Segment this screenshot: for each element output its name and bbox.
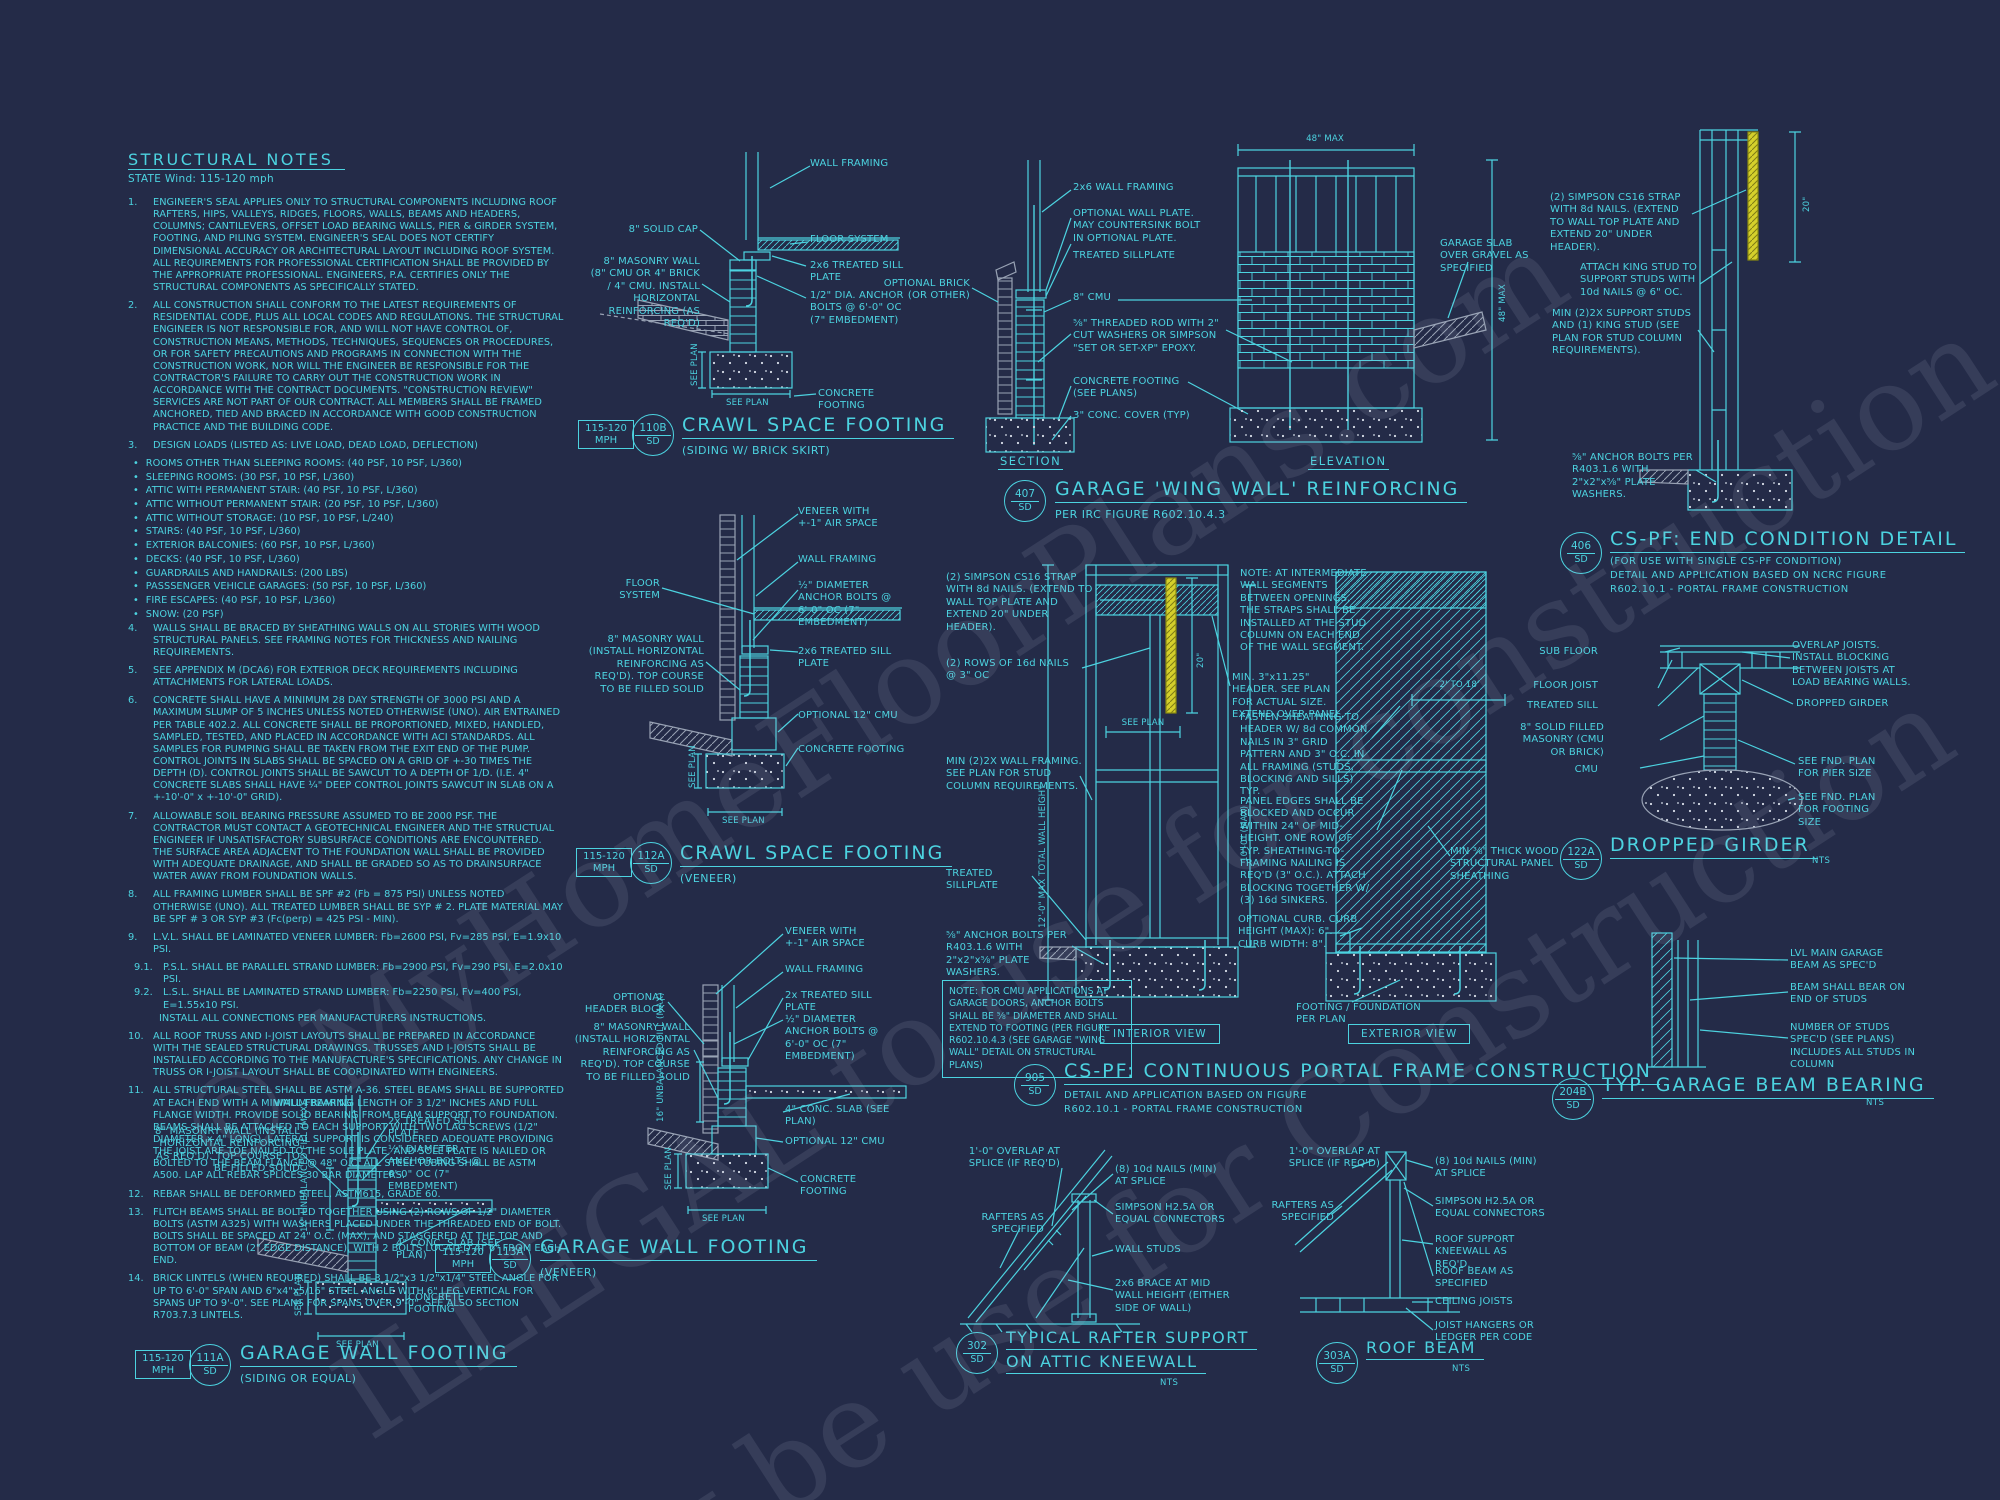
label-lvl-beam: LVL MAIN GARAGE BEAM AS SPEC'D: [1790, 948, 1910, 973]
d5-elevation-linework: [1230, 144, 1498, 442]
label-floor-system: FLOOR SYSTEM: [598, 578, 660, 603]
label-rafters: RAFTERS AS SPECIFIED: [958, 1212, 1044, 1237]
detail-subtitle: (SIDING W/ BRICK SKIRT): [682, 444, 830, 457]
label-sub-floor: SUB FLOOR: [1530, 646, 1598, 658]
label-wall-studs: WALL STUDS: [1115, 1244, 1205, 1256]
label-treated-sillplate: TREATED SILLPLATE: [1073, 250, 1193, 262]
dim-unbalanced-fill: 16" UNBALANCED FILL (MAX): [656, 992, 667, 1122]
label-stud-count: NUMBER OF STUDS SPEC'D (SEE PLANS) INCLU…: [1790, 1022, 1920, 1072]
detail-subtitle: R602.10.1 - PORTAL FRAME CONSTRUCTION: [1064, 1104, 1303, 1115]
note-item: 6.CONCRETE SHALL HAVE A MINIMUM 28 DAY S…: [128, 695, 564, 804]
detail-title-crawl-space-footing-veneer: CRAWL SPACE FOOTING: [680, 842, 952, 867]
design-load-bullet: SNOW: (20 PSF): [133, 609, 564, 622]
label-wall-framing: WALL FRAMING: [785, 964, 865, 976]
label-optional-cmu: OPTIONAL 12" CMU: [785, 1136, 895, 1148]
label-simpson-strap: (2) SIMPSON CS16 STRAP WITH 8d NAILS. (E…: [1550, 192, 1692, 254]
dim-48-max-right: 48" MAX: [1498, 284, 1509, 322]
detail-number-badge: 204B SD: [1552, 1078, 1594, 1120]
wind-rating-badge: 115-120 MPH: [135, 1350, 191, 1379]
label-garage-slab: GARAGE SLAB OVER GRAVEL AS SPECIFIED: [1440, 238, 1540, 275]
design-load-bullet: ATTIC WITHOUT STORAGE: (10 PSF, 10 PSF, …: [133, 513, 564, 526]
dim-see-plan: SEE PLAN: [702, 1214, 757, 1225]
label-wall-framing: MIN (2)2X WALL FRAMING. SEE PLAN FOR STU…: [946, 756, 1086, 793]
detail-subtitle: DETAIL AND APPLICATION BASED ON FIGURE: [1064, 1090, 1307, 1101]
nts-label: NTS: [1866, 1098, 1884, 1108]
dim-20in: 20": [1802, 197, 1813, 212]
dim-span: 2' TO 18': [1412, 680, 1507, 691]
label-slab: 4" CONC. SLAB (SEE PLAN): [785, 1104, 890, 1129]
note-item: 3.DESIGN LOADS (LISTED AS: LIVE LOAD, DE…: [128, 440, 564, 452]
detail-title-roof-beam: ROOF BEAM: [1366, 1338, 1484, 1360]
note-item: 5.SEE APPENDIX M (DCA6) FOR EXTERIOR DEC…: [128, 665, 564, 689]
detail-number-badge: 122A SD: [1560, 838, 1602, 880]
label-treated-sillplate: TREATED SILLPLATE: [946, 868, 1031, 893]
detail-subtitle: DETAIL AND APPLICATION BASED ON NCRC FIG…: [1610, 570, 1887, 581]
dim-see-plan: SEE PLAN: [1112, 718, 1174, 729]
label-pier-size: SEE FND. PLAN FOR PIER SIZE: [1798, 756, 1888, 781]
label-optional-brick: OPTIONAL BRICK (OR OTHER): [880, 278, 970, 303]
label-header-block: OPTIONAL HEADER BLOCK: [570, 992, 665, 1017]
label-anchor-bolts: ½" DIAMETER ANCHOR BOLTS @ 6'-0" OC (7" …: [798, 580, 916, 630]
notes-title: STRUCTURAL NOTES: [128, 150, 345, 170]
design-load-bullet: ATTIC WITHOUT PERMANENT STAIR: (20 PSF, …: [133, 499, 564, 512]
detail-title-garage-wall-footing-veneer: GARAGE WALL FOOTING: [540, 1236, 817, 1261]
design-load-bullet: EXTERIOR BALCONIES: (60 PSF, 10 PSF, L/3…: [133, 540, 564, 553]
label-masonry-wall: 8" MASONRY WALL (INSTALL HORIZONTAL REIN…: [586, 634, 704, 696]
label-wall-framing: 2x6 WALL FRAMING: [1073, 182, 1183, 194]
label-rafters: RAFTERS AS SPECIFIED: [1248, 1200, 1334, 1225]
design-load-bullet: SLEEPING ROOMS: (30 PSF, 10 PSF, L/360): [133, 472, 564, 485]
label-concrete-footing: CONCRETE FOOTING: [800, 1174, 890, 1199]
dim-wall-height: 12'-0" MAX TOTAL WALL HEIGHT: [1038, 784, 1049, 928]
label-sill-plate: 2x TREATED SILL PLATE: [388, 1116, 488, 1141]
label-veneer: VENEER WITH +-1" AIR SPACE: [798, 506, 893, 531]
dim-10ft-max: 10'-0" (MAX): [1240, 806, 1251, 862]
dim-unbalanced-fill: 16" UNBALANCED FILL (MAX): [300, 1102, 311, 1232]
label-floor-system: FLOOR SYSTEM: [810, 234, 890, 246]
label-sill-plate: 2x TREATED SILL PLATE: [785, 990, 885, 1015]
label-brace: 2x6 BRACE AT MID WALL HEIGHT (EITHER SID…: [1115, 1278, 1239, 1315]
label-16d-rows: (2) ROWS OF 16d NAILS @ 3" OC: [946, 658, 1078, 683]
detail-subtitle: (VENEER): [540, 1266, 597, 1279]
note-item: 8.ALL FRAMING LUMBER SHALL BE SPF #2 (Fb…: [128, 889, 564, 925]
dim-see-plan: SEE PLAN: [664, 1147, 675, 1190]
detail-title-rafter-support-2: ON ATTIC KNEEWALL: [1006, 1352, 1206, 1374]
label-dropped-girder: DROPPED GIRDER: [1796, 698, 1896, 710]
nts-label: NTS: [1812, 856, 1830, 866]
label-conc-cover: 3" CONC. COVER (TYP): [1073, 410, 1193, 422]
dim-20in: 20": [1196, 653, 1207, 668]
note-item: 4.WALLS SHALL BE BRACED BY SHEATHING WAL…: [128, 623, 564, 659]
label-anchor-bolts: ½" DIAMETER ANCHOR BOLTS @ 6'-0" OC (7" …: [785, 1014, 903, 1064]
label-masonry-wall: 8" MASONRY WALL (INSTALL HORIZONTAL REIN…: [568, 1022, 690, 1084]
label-splice-nails: (8) 10d NAILS (MIN) AT SPLICE: [1435, 1156, 1545, 1181]
note-intermediate-segments: NOTE: AT INTERMEDIATE WALL SEGMENTS BETW…: [1240, 568, 1372, 655]
label-support-studs: MIN (2)2X SUPPORT STUDS AND (1) KING STU…: [1552, 308, 1694, 358]
detail-number-badge: 303A SD: [1316, 1342, 1358, 1384]
label-sill-plate: 2x6 TREATED SILL PLATE: [798, 646, 898, 671]
design-load-bullet: ATTIC WITH PERMANENT STAIR: (40 PSF, 10 …: [133, 485, 564, 498]
label-solid-cap: 8" SOLID CAP: [608, 224, 698, 236]
label-masonry-wall: 8" MASONRY WALL (8" CMU OR 4" BRICK / 4"…: [586, 256, 700, 330]
label-concrete-footing: CONCRETE FOOTING (SEE PLANS): [1073, 376, 1183, 401]
dim-see-plan: SEE PLAN: [294, 1273, 305, 1316]
label-cmu: CMU: [1558, 764, 1598, 776]
label-beam-bearing: BEAM SHALL BEAR ON END OF STUDS: [1790, 982, 1910, 1007]
detail-subtitle: PER IRC FIGURE R602.10.4.3: [1055, 508, 1226, 521]
dim-see-plan: SEE PLAN: [726, 398, 781, 409]
label-ceiling-joists: CEILING JOISTS: [1435, 1296, 1525, 1308]
detail-subtitle: (SIDING OR EQUAL): [240, 1372, 356, 1385]
detail-title-rafter-support-1: TYPICAL RAFTER SUPPORT: [1006, 1328, 1257, 1350]
wind-rating-badge: 115-120 MPH: [578, 420, 634, 449]
note-item: 1.ENGINEER'S SEAL APPLIES ONLY TO STRUCT…: [128, 197, 564, 294]
label-optional-curb: OPTIONAL CURB. CURB HEIGHT (MAX): 6". CU…: [1238, 914, 1362, 951]
wind-rating-badge: 115-120 MPH: [576, 848, 632, 877]
detail-title-garage-beam-bearing: TYP. GARAGE BEAM BEARING: [1602, 1074, 1934, 1099]
label-concrete-footing: CONCRETE FOOTING: [408, 1292, 498, 1317]
label-simpson-connector: SIMPSON H2.5A OR EQUAL CONNECTORS: [1435, 1196, 1545, 1221]
detail-title-crawl-space-footing-brick: CRAWL SPACE FOOTING: [682, 414, 954, 439]
label-panel-sheathing: MIN ⅜" THICK WOOD STRUCTURAL PANEL SHEAT…: [1450, 846, 1560, 883]
label-concrete-footing: CONCRETE FOOTING: [798, 744, 908, 756]
note-item: 7.ALLOWABLE SOIL BEARING PRESSURE ASSUME…: [128, 811, 564, 884]
label-fasten-sheathing: FASTEN SHEATHING TO HEADER W/ 8d COMMON …: [1240, 712, 1372, 799]
label-optional-cmu: OPTIONAL 12" CMU: [798, 710, 908, 722]
label-panel-edges: PANEL EDGES SHALL BE BLOCKED AND OCCUR W…: [1240, 796, 1376, 908]
design-load-bullet: GUARDRAILS AND HANDRAILS: (200 LBS): [133, 568, 564, 581]
label-masonry-wall: 8" MASONRY WALL (INSTALL HORIZONTAL REIN…: [152, 1126, 300, 1176]
detail-subtitle: (FOR USE WITH SINGLE CS-PF CONDITION): [1610, 556, 1842, 567]
note-continuation: INSTALL ALL CONNECTIONS PER MANUFACTURER…: [159, 1013, 564, 1025]
label-anchor-bolts: ⅝" ANCHOR BOLTS PER R403.1.6 WITH 2"x2"x…: [1572, 452, 1694, 502]
detail-number-badge: 406 SD: [1560, 532, 1602, 574]
detail-number-badge: 302 SD: [956, 1332, 998, 1374]
detail-number-badge: 111A SD: [189, 1344, 231, 1386]
label-slab: 4" CONC. SLAB (SEE PLAN): [396, 1238, 501, 1263]
view-label-interior: INTERIOR VIEW: [1100, 1024, 1220, 1044]
label-treated-sill: TREATED SILL: [1518, 700, 1598, 712]
label-anchor-bolts: ⅝" ANCHOR BOLTS PER R403.1.6 WITH 2"x2"x…: [946, 930, 1068, 980]
label-overlap-splice: 1'-0" OVERLAP AT SPLICE (IF REQ'D): [958, 1146, 1060, 1171]
design-load-bullet: FIRE ESCAPES: (40 PSF, 10 PSF, L/360): [133, 595, 564, 608]
label-cmu: 8" CMU: [1073, 292, 1133, 304]
blueprint-sheet: STRUCTURAL NOTES STATE Wind: 115-120 mph…: [0, 0, 2000, 1500]
detail-title-wing-wall: GARAGE 'WING WALL' REINFORCING: [1055, 478, 1467, 503]
note-item: 10.ALL ROOF TRUSS AND I-JOIST LAYOUTS SH…: [128, 1031, 564, 1080]
note-item: 9.L.V.L. SHALL BE LAMINATED VENEER LUMBE…: [128, 932, 564, 956]
design-load-bullet: PASSSENGER VEHICLE GARAGES: (50 PSF, 10 …: [133, 581, 564, 594]
label-overlap-joists: OVERLAP JOISTS. INSTALL BLOCKING BETWEEN…: [1792, 640, 1912, 690]
nts-label: NTS: [1452, 1364, 1470, 1374]
d7-linework: [1640, 646, 1802, 830]
view-label-exterior: EXTERIOR VIEW: [1348, 1024, 1470, 1044]
d9-linework: [1648, 933, 1788, 1067]
label-footing-size: SEE FND. PLAN FOR FOOTING SIZE: [1798, 792, 1888, 829]
label-wall-plate: OPTIONAL WALL PLATE. MAY COUNTERSINK BOL…: [1073, 208, 1213, 245]
label-roof-beam: ROOF BEAM AS SPECIFIED: [1435, 1266, 1535, 1291]
note-subitem: 9.2.L.S.L. SHALL BE LAMINATED STRAND LUM…: [128, 987, 564, 1011]
note-item: 14.BRICK LINTELS (WHEN REQUIRED) SHALL B…: [128, 1273, 564, 1322]
nts-label: NTS: [1160, 1378, 1178, 1388]
label-veneer: VENEER WITH +-1" AIR SPACE: [785, 926, 880, 951]
label-floor-joist: FLOOR JOIST: [1524, 680, 1598, 692]
label-wall-framing: WALL FRAMING: [798, 554, 878, 566]
label-splice-nails: (8) 10d NAILS (MIN) AT SPLICE: [1115, 1164, 1225, 1189]
view-label-section: SECTION: [998, 454, 1063, 470]
dim-see-plan: SEE PLAN: [688, 745, 699, 788]
dim-see-plan: SEE PLAN: [722, 816, 777, 827]
dim-48-max-top: 48" MAX: [1290, 134, 1360, 145]
note-item: 2.ALL CONSTRUCTION SHALL CONFORM TO THE …: [128, 300, 564, 434]
d10-linework: [960, 1150, 1140, 1332]
design-load-bullet: STAIRS: (40 PSF, 10 PSF, L/360): [133, 526, 564, 539]
label-solid-masonry: 8" SOLID FILLED MASONRY (CMU OR BRICK): [1508, 722, 1604, 759]
detail-number-badge: 110B SD: [632, 414, 674, 456]
note-subitem: 9.1.P.S.L. SHALL BE PARALLEL STRAND LUMB…: [128, 962, 564, 986]
detail-number-badge: 905 SD: [1014, 1064, 1056, 1106]
label-simpson-connector: SIMPSON H2.5A OR EQUAL CONNECTORS: [1115, 1202, 1225, 1227]
label-simpson-strap: (2) SIMPSON CS16 STRAP WITH 8d NAILS. (E…: [946, 572, 1096, 634]
detail-title-cspf-end-condition: CS-PF: END CONDITION DETAIL: [1610, 528, 1965, 553]
detail-title-garage-wall-footing-siding: GARAGE WALL FOOTING: [240, 1342, 517, 1367]
detail-subtitle: R602.10.1 - PORTAL FRAME CONSTRUCTION: [1610, 584, 1849, 595]
detail-title-dropped-girder: DROPPED GIRDER: [1610, 834, 1818, 859]
label-wall-framing: WALL FRAMING: [810, 158, 890, 170]
label-anchor-bolts: ½" DIAMETER ANCHOR BOLTS @ 6'-0" OC (7" …: [388, 1144, 506, 1194]
detail-number-badge: 112A SD: [630, 842, 672, 884]
design-load-bullet: ROOMS OTHER THAN SLEEPING ROOMS: (40 PSF…: [133, 458, 564, 471]
detail-subtitle: (VENEER): [680, 872, 737, 885]
dim-see-plan: SEE PLAN: [690, 343, 701, 386]
label-threaded-rod: ⅝" THREADED ROD WITH 2" CUT WASHERS OR S…: [1073, 318, 1223, 355]
label-overlap-splice: 1'-0" OVERLAP AT SPLICE (IF REQ'D): [1278, 1146, 1380, 1171]
detail-number-badge: 407 SD: [1004, 480, 1046, 522]
design-load-bullet: DECKS: (40 PSF, 10 PSF, L/360): [133, 554, 564, 567]
label-concrete-footing: CONCRETE FOOTING: [818, 388, 898, 413]
label-king-stud: ATTACH KING STUD TO SUPPORT STUDS WITH 1…: [1580, 262, 1700, 299]
notes-wind-subtitle: STATE Wind: 115-120 mph: [128, 173, 564, 185]
view-label-elevation: ELEVATION: [1308, 454, 1389, 470]
